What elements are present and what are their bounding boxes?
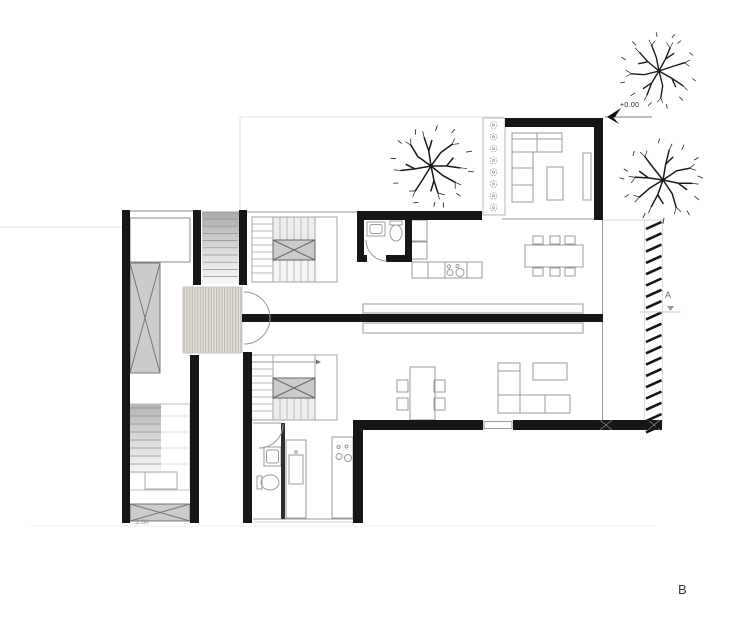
planter-strip: [483, 118, 505, 215]
bathroom-upper: [367, 221, 402, 241]
breakfast-set: [397, 367, 445, 420]
stair-direction-arrow: [316, 360, 321, 365]
store-room: [130, 211, 193, 262]
spine-shelf-upper: [363, 304, 583, 313]
toilet-icon: [390, 221, 402, 225]
louver-hatch-strip: [646, 222, 662, 432]
kitchen-upper: [410, 220, 482, 278]
cooktop-icon: [336, 445, 352, 462]
stair-level-label: 2.00: [136, 520, 149, 527]
lower-stairs-shade: [128, 404, 161, 474]
void-cross-left: [130, 263, 160, 373]
section-arrow-icon: [667, 306, 674, 311]
tv-sideboard: [583, 153, 591, 200]
floor-plan-drawing: [0, 0, 731, 644]
floor-plan: +0.00 A B 2.00: [0, 0, 731, 644]
lower-sofa: [498, 363, 570, 413]
dining-table: [525, 245, 583, 267]
section-b-label: B: [678, 583, 687, 596]
lower-side-table: [533, 363, 567, 380]
timber-deck: [183, 287, 242, 353]
bathroom-lower-door-arc: [259, 424, 283, 448]
bathroom-upper-door-arc: [366, 240, 387, 261]
level-label: +0.00: [620, 102, 639, 109]
section-a-label: A: [665, 291, 671, 300]
coffee-table: [547, 167, 563, 200]
kitchen-lower: [286, 437, 353, 518]
fridge: [411, 242, 427, 259]
small-table: [410, 367, 435, 420]
bathroom-lower: [253, 423, 281, 490]
cooktop-icon: [447, 264, 464, 276]
sliding-door: [484, 422, 512, 429]
dining-set: [525, 236, 583, 276]
spine-shelf-lower: [363, 323, 583, 333]
level-marker: [605, 108, 652, 124]
